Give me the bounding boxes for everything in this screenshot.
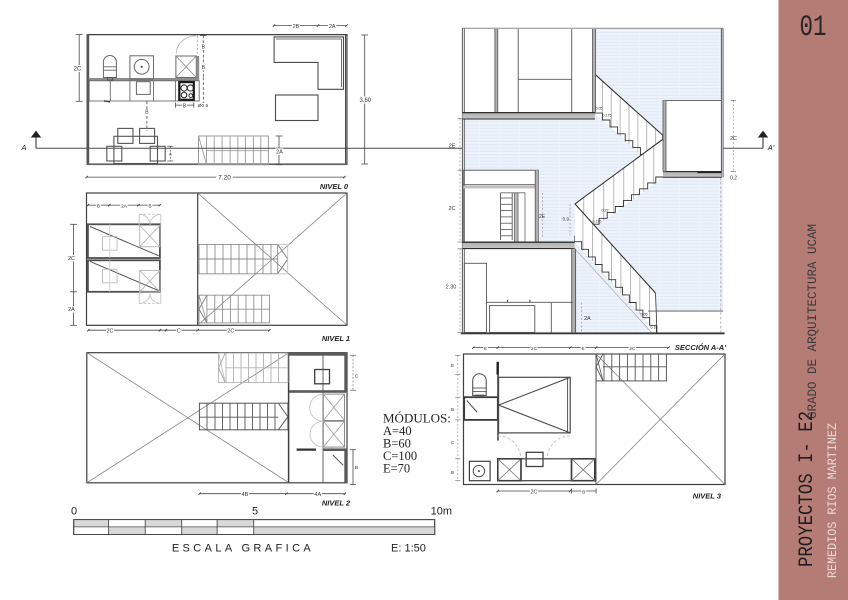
svg-text:0.16: 0.16 — [651, 325, 658, 329]
svg-text:B: B — [148, 203, 151, 209]
svg-text:2C: 2C — [530, 489, 537, 495]
svg-text:2.30: 2.30 — [446, 285, 457, 291]
svg-text:2C: 2C — [74, 67, 82, 73]
svg-text:E=70: E=70 — [383, 462, 410, 476]
svg-text:2C: 2C — [106, 329, 113, 335]
svg-text:A: A — [20, 143, 26, 152]
svg-text:B: B — [582, 489, 585, 495]
svg-text:0.2: 0.2 — [730, 176, 737, 182]
svg-text:2C: 2C — [227, 329, 234, 335]
svg-text:NIVEL 3: NIVEL 3 — [693, 492, 722, 501]
svg-text:2A: 2A — [121, 203, 128, 209]
svg-text:2C: 2C — [448, 206, 455, 212]
svg-text:2A: 2A — [68, 307, 75, 313]
svg-text:Ø0.5: Ø0.5 — [198, 103, 209, 109]
svg-text:3.60: 3.60 — [359, 98, 371, 104]
svg-text:GRADO DE ARQUITECTURA UCAM: GRADO DE ARQUITECTURA UCAM — [805, 224, 820, 419]
svg-text:2A: 2A — [584, 316, 591, 322]
svg-text:0.05: 0.05 — [596, 106, 603, 110]
svg-text:5: 5 — [252, 506, 258, 518]
svg-text:B: B — [97, 203, 100, 209]
svg-text:2A: 2A — [329, 24, 336, 30]
svg-text:B: B — [451, 470, 454, 475]
svg-text:2C: 2C — [531, 346, 538, 352]
svg-text:NIVEL 1: NIVEL 1 — [322, 334, 350, 343]
svg-text:B: B — [355, 465, 358, 471]
svg-text:4B: 4B — [242, 492, 249, 498]
svg-text:10m: 10m — [431, 506, 452, 518]
svg-text:NIVEL 2: NIVEL 2 — [322, 499, 351, 508]
svg-text:REMEDIOS RIOS MARTINEZ: REMEDIOS RIOS MARTINEZ — [826, 423, 840, 578]
svg-text:E: E — [451, 363, 454, 368]
svg-text:0.175: 0.175 — [603, 114, 612, 118]
svg-text:0.22: 0.22 — [602, 209, 609, 213]
svg-text:4A: 4A — [314, 492, 321, 498]
svg-text:E: E — [484, 346, 487, 352]
svg-text:NIVEL 0: NIVEL 0 — [320, 182, 349, 191]
svg-text:0.05: 0.05 — [641, 313, 648, 317]
svg-text:2C: 2C — [730, 136, 737, 142]
svg-text:0.9: 0.9 — [563, 217, 570, 222]
svg-text:2E: 2E — [539, 214, 546, 220]
svg-text:ESCALA GRAFICA: ESCALA GRAFICA — [172, 543, 314, 555]
svg-text:2E: 2E — [449, 144, 456, 150]
svg-text:2A: 2A — [276, 149, 283, 155]
svg-text:A': A' — [767, 143, 775, 152]
svg-text:2C: 2C — [68, 256, 75, 262]
svg-text:2B: 2B — [293, 24, 300, 30]
svg-text:PROYECTOS I- E2: PROYECTOS I- E2 — [796, 411, 819, 567]
svg-text:2C: 2C — [629, 346, 636, 352]
svg-text:C: C — [177, 329, 181, 335]
svg-text:B: B — [451, 407, 454, 412]
svg-text:A: A — [169, 152, 172, 157]
svg-text:E: 1:50: E: 1:50 — [391, 543, 426, 555]
svg-text:01: 01 — [800, 11, 827, 45]
svg-text:0.175: 0.175 — [593, 220, 602, 224]
svg-text:C: C — [355, 373, 359, 379]
svg-text:SECCIÓN A-A': SECCIÓN A-A' — [675, 343, 726, 352]
svg-text:E: E — [581, 346, 584, 352]
svg-text:0: 0 — [71, 506, 77, 518]
svg-text:7.20: 7.20 — [218, 175, 231, 182]
